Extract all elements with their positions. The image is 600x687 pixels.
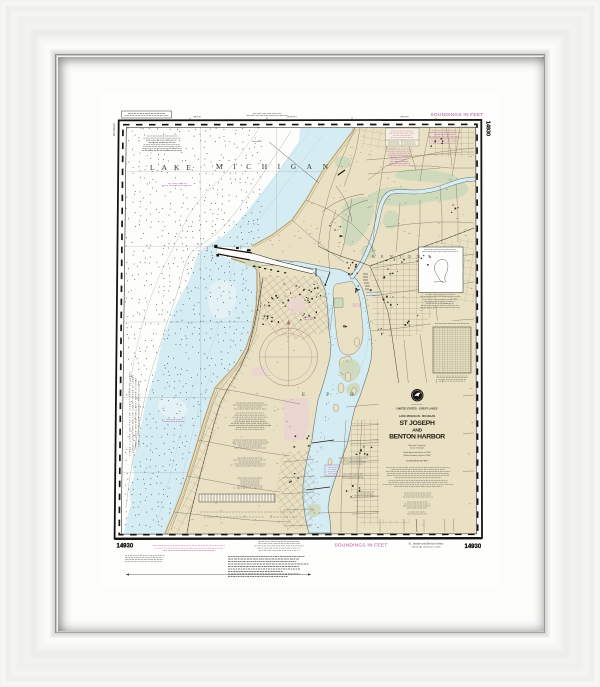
svg-text:LORAN C LINES OMITTED FOR CLAR: LORAN C LINES OMITTED FOR CLARITY REFER … bbox=[129, 371, 132, 456]
svg-text:SOUNDINGS IN FEET: SOUNDINGS IN FEET bbox=[334, 542, 387, 548]
svg-text:E P H: E P H bbox=[302, 393, 364, 398]
svg-text:North American Datum of 1983: North American Datum of 1983 bbox=[403, 451, 431, 454]
svg-text:UNITED STATES - GREAT LAKES: UNITED STATES - GREAT LAKES bbox=[397, 407, 438, 411]
svg-text:LAKE MICHIGAN - MICHIGAN: LAKE MICHIGAN - MICHIGAN bbox=[399, 414, 435, 418]
svg-text:Scale 1:15,000: Scale 1:15,000 bbox=[410, 448, 424, 450]
svg-text:SOUNDINGS IN FEET: SOUNDINGS IN FEET bbox=[406, 460, 429, 462]
svg-text:SOUNDINGS IN FEET: SOUNDINGS IN FEET bbox=[430, 112, 483, 118]
svg-text:14930: 14930 bbox=[485, 121, 491, 136]
svg-text:LORAN C LINES OMITTED FOR CLAR: LORAN C LINES OMITTED FOR CLARITY REFER … bbox=[132, 374, 135, 453]
svg-text:14930: 14930 bbox=[465, 544, 482, 550]
svg-text:BENTON HARBOR: BENTON HARBOR bbox=[389, 433, 445, 440]
svg-text:Mercator Projection: Mercator Projection bbox=[408, 444, 425, 447]
svg-text:St. Joseph and Benton Harbor: St. Joseph and Benton Harbor bbox=[409, 541, 444, 545]
svg-text:ST JOSEPH: ST JOSEPH bbox=[400, 420, 435, 427]
svg-text:LORAN C LINES OMITTED FOR CLAR: LORAN C LINES OMITTED FOR CLARITY REFER … bbox=[135, 377, 138, 450]
svg-text:MICHIGAN: MICHIGAN bbox=[112, 123, 116, 136]
svg-text:Summit Lt: Summit Lt bbox=[252, 140, 262, 143]
svg-text:(World Geodetic System 1984): (World Geodetic System 1984) bbox=[403, 454, 431, 457]
svg-text:14930: 14930 bbox=[117, 544, 134, 550]
svg-text:14th Ed., Apr. 2013 Scale 1:1: 14th Ed., Apr. 2013 Scale 1:15,000 bbox=[411, 546, 440, 549]
svg-text:BENTON: BENTON bbox=[372, 254, 426, 259]
svg-text:LORAN C LINES OMITTED FOR CLAR: LORAN C LINES OMITTED FOR CLARITY REFER … bbox=[138, 380, 141, 447]
